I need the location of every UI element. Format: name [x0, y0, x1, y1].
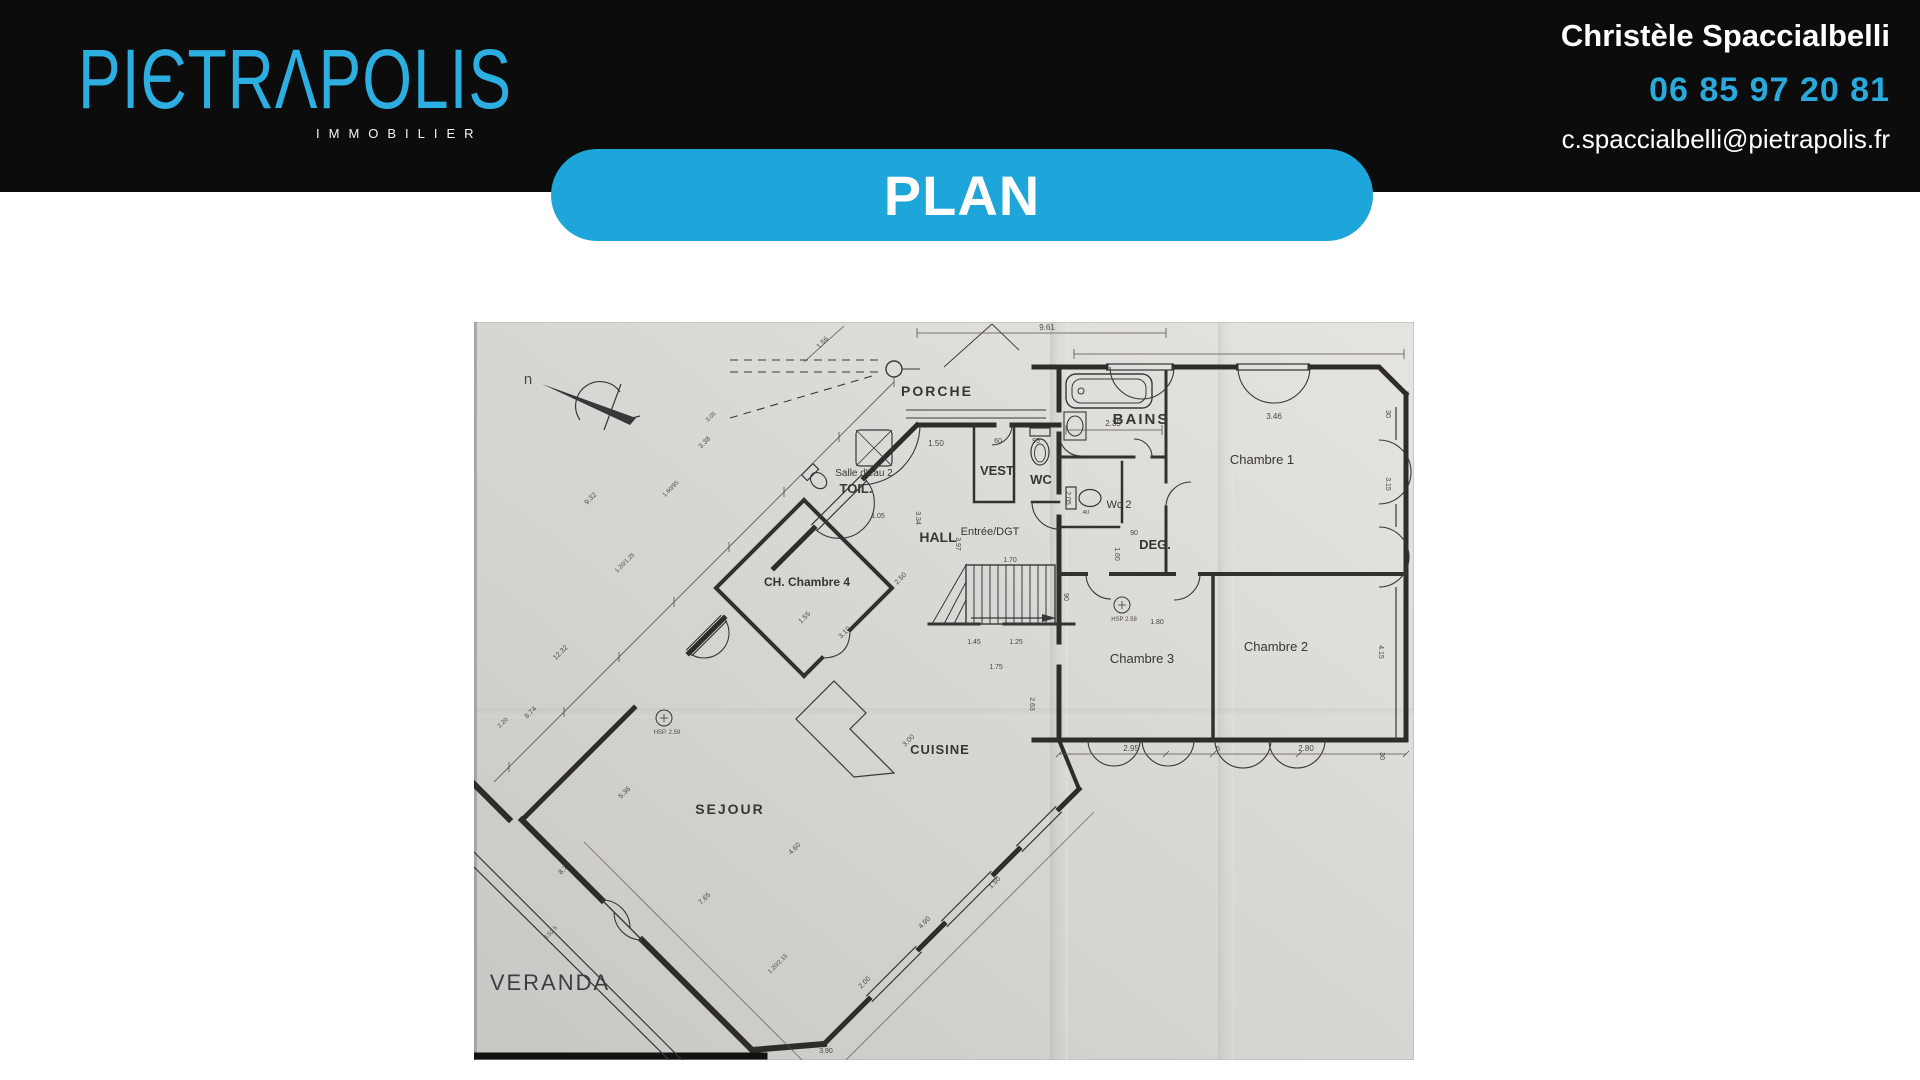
dim-label: 2.05	[1064, 491, 1071, 505]
room-label: Chambre 3	[1110, 651, 1174, 666]
dim-label: 1.25	[1009, 639, 1023, 646]
dim-label: HSP 2.58	[1111, 617, 1137, 623]
dim-label: 1.75	[989, 664, 1003, 671]
scan-crease-horizontal	[474, 708, 1414, 718]
room-label: VERANDA	[490, 970, 610, 995]
dim-label: 2.80	[1298, 744, 1314, 753]
dim-label: 3.34	[914, 511, 921, 525]
brand-tagline: IMMOBILIER	[316, 126, 483, 141]
room-label: Chambre 2	[1244, 639, 1308, 654]
agent-phone: 06 85 97 20 81	[1649, 72, 1890, 108]
dim-label: 3.97	[954, 537, 961, 551]
dim-label: 30	[1378, 752, 1385, 760]
plan-banner: PLAN	[551, 149, 1373, 241]
dim-label: 1.50	[928, 439, 944, 448]
room-label: Wc 2	[1106, 499, 1131, 511]
dim-label: n	[524, 371, 532, 388]
dim-label: 2.35	[1105, 419, 1121, 428]
room-label: WC	[1030, 472, 1052, 487]
agent-contact-block: Christèle Spaccialbelli 06 85 97 20 81 c…	[1561, 18, 1890, 154]
dim-label: 30	[1384, 410, 1391, 418]
dim-label: 1.80	[1150, 619, 1164, 626]
room-label: TOIL.	[840, 481, 873, 496]
dim-label: 3.46	[1266, 412, 1282, 421]
floor-plan-image: PORCHEBAINSChambre 1Salle d'eau 2TOIL.VE…	[474, 322, 1414, 1060]
dim-label: 90	[1062, 593, 1069, 601]
room-label: Chambre 1	[1230, 452, 1294, 467]
room-label: SEJOUR	[695, 801, 765, 817]
dim-label: 1.45	[967, 639, 981, 646]
room-label: Salle d'eau 2	[835, 468, 893, 479]
dim-label: 90	[1130, 530, 1138, 537]
dim-label: 2.95	[1123, 744, 1139, 753]
room-label: CUISINE	[910, 742, 970, 757]
dim-label: 4.15	[1377, 645, 1384, 659]
dim-label: HSP. 2.59	[654, 730, 681, 736]
room-label: CH. Chambre 4	[764, 575, 850, 589]
brand-logo: PIЄTRΛPOLIS	[78, 30, 512, 128]
scan-crease-vertical-2	[1218, 322, 1234, 1060]
dim-label: 5	[1368, 572, 1375, 576]
dim-label: 2.63	[1028, 697, 1035, 711]
floor-plan-drawing: PORCHEBAINSChambre 1Salle d'eau 2TOIL.VE…	[474, 322, 1414, 1060]
dim-label: 60	[994, 438, 1002, 445]
agent-email: c.spaccialbelli@pietrapolis.fr	[1562, 124, 1890, 154]
room-label: HALL	[919, 529, 957, 545]
dim-label: 1.60	[1113, 547, 1120, 561]
dim-label: 3.90	[819, 1048, 833, 1055]
agent-name: Christèle Spaccialbelli	[1561, 18, 1890, 54]
room-label: PORCHE	[901, 383, 973, 399]
dim-label: 5	[1216, 746, 1220, 753]
scan-left-edge	[474, 322, 477, 1060]
room-label: BAINS	[1113, 411, 1170, 428]
dim-label: 95	[1032, 438, 1040, 445]
dim-label: 3.15	[1384, 477, 1391, 491]
room-label: VEST.	[980, 463, 1016, 478]
scan-paper	[474, 322, 1414, 1060]
dim-label: 1.05	[871, 513, 885, 520]
dim-label: 40	[1083, 510, 1090, 516]
dim-label: 9.61	[1039, 323, 1055, 332]
plan-banner-label: PLAN	[884, 163, 1040, 228]
room-label: DEG.	[1139, 537, 1171, 552]
room-label: Entrée/DGT	[961, 526, 1020, 538]
dim-label: 1.70	[1003, 557, 1017, 564]
